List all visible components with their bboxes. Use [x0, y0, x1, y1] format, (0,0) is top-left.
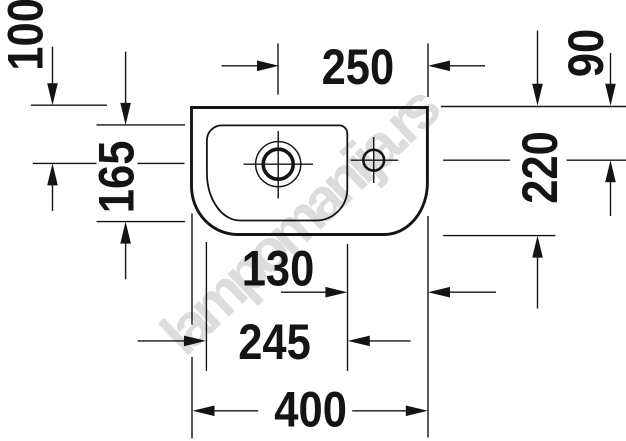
svg-text:245: 245: [238, 314, 311, 369]
svg-text:90: 90: [558, 29, 613, 77]
svg-text:165: 165: [89, 141, 144, 214]
svg-text:130: 130: [242, 241, 315, 296]
svg-text:220: 220: [512, 131, 567, 204]
svg-text:100: 100: [0, 0, 53, 71]
svg-text:400: 400: [274, 382, 347, 437]
svg-text:250: 250: [322, 39, 395, 94]
